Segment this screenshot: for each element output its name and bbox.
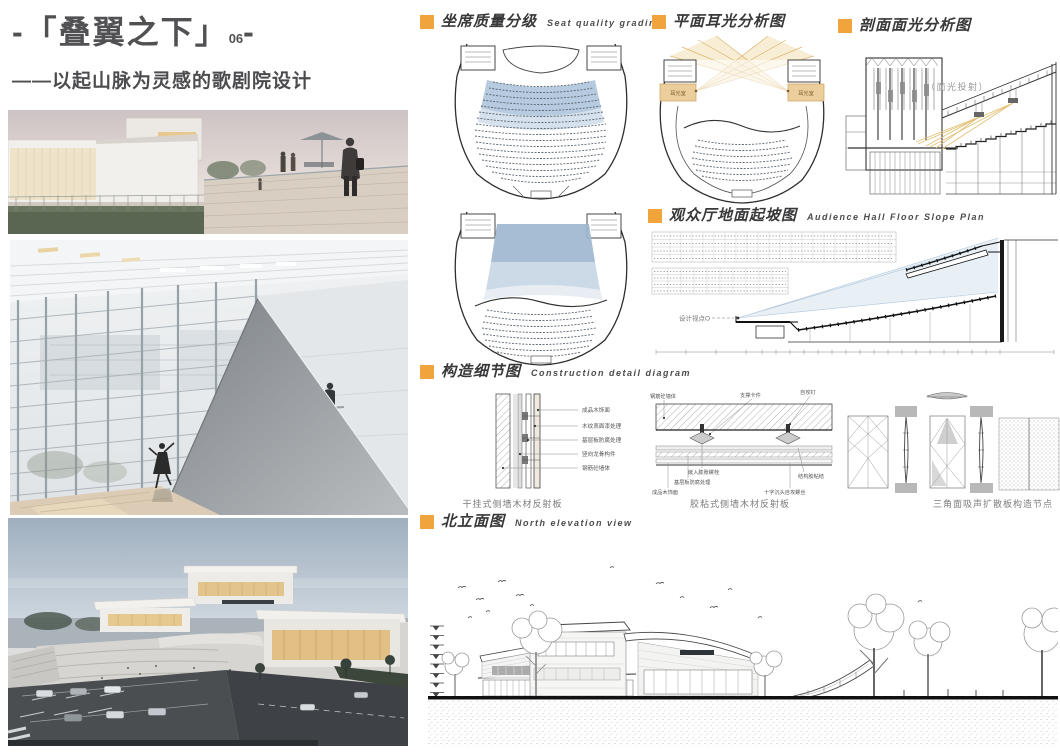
d2-callout-adhesive: 结构胶粘结 xyxy=(798,472,824,480)
poster: { "poster": { "title_open": "-「", "title… xyxy=(0,0,1060,753)
section-header-ear-light: 平面耳光分析图 xyxy=(652,14,785,30)
d2-callout-wall: 钢筋砼墙体 xyxy=(650,392,677,400)
detail-glued-diagram: 钢筋砼墙体 支撑卡件 自攻钉 嵌入膨胀螺栓 基层板防腐处理 成品木饰面 结构胶粘… xyxy=(648,388,840,496)
elevation-people xyxy=(904,689,1003,696)
ground-stipple xyxy=(428,701,1058,746)
floor-slope-title-zh: 观众厅地面起坡图 xyxy=(669,208,797,224)
render-terrace-art xyxy=(8,110,408,234)
detail-diffuser-diagram xyxy=(845,388,1060,493)
face-light-projection-label: （面光投射） xyxy=(926,81,989,92)
ear-room-left-label: 耳光室 xyxy=(670,89,686,97)
construction-detail-title-zh: 构造细节图 xyxy=(441,364,521,380)
north-elevation-drawing xyxy=(428,538,1058,748)
d1-callout-2: 木纹表面漆处理 xyxy=(582,422,622,430)
section-header-north-elevation: 北立面图 North elevation view xyxy=(420,514,633,530)
title-index: 06 xyxy=(229,31,243,46)
detail-dry-hang-diagram: 成品木饰面 木纹表面漆处理 基层板防腐处理 竖向龙骨构件 钢筋砼墙体 xyxy=(478,390,643,492)
floor-slope-title-en: Audience Hall Floor Slope Plan xyxy=(807,212,985,222)
ear-room-right-label: 耳光室 xyxy=(798,89,814,97)
d2-callout-crossscrew: 十字沉头自攻螺丝 xyxy=(764,488,806,496)
d2-callout-finish: 成品木饰面 xyxy=(652,488,678,496)
seat-grading-title-en: Seat quality grading xyxy=(547,18,663,28)
section-header-seat-grading: 坐席质量分级 Seat quality grading xyxy=(420,14,663,30)
orange-square-icon xyxy=(648,209,662,223)
title-close: 」 xyxy=(195,14,229,50)
title-main: 叠翼之下 xyxy=(59,14,195,50)
orange-square-icon xyxy=(420,365,434,379)
render-aerial-art xyxy=(8,518,408,746)
d1-callout-4: 竖向龙骨构件 xyxy=(582,450,616,458)
seat-plan-level2-diagram xyxy=(443,206,639,366)
d1-callout-3: 基层板防腐处理 xyxy=(582,436,622,444)
orange-square-icon xyxy=(838,19,852,33)
floor-slope-diagram: 设计视点O xyxy=(650,230,1060,362)
north-elevation-title-en: North elevation view xyxy=(515,518,633,528)
detail-caption-1: 干挂式侧墙木材反射板 xyxy=(440,497,585,510)
render-atrium-photo xyxy=(10,240,408,515)
d2-callout-baseboard: 基层板防腐处理 xyxy=(674,478,711,486)
render-terrace-photo xyxy=(8,110,408,234)
d1-callout-1: 成品木饰面 xyxy=(582,406,610,414)
d2-callout-clip: 支撑卡件 xyxy=(740,391,761,399)
section-header-floor-slope: 观众厅地面起坡图 Audience Hall Floor Slope Plan xyxy=(648,208,985,224)
face-light-section-diagram: （面光投射） xyxy=(838,52,1060,205)
title-block: -「叠翼之下」06- ——以起山脉为灵感的歌剧院设计 xyxy=(12,12,410,93)
orange-square-icon xyxy=(420,15,434,29)
slope-data-table-2 xyxy=(652,268,788,294)
design-viewpoint-label: 设计视点O xyxy=(679,314,710,323)
d1-callout-5: 钢筋砼墙体 xyxy=(582,464,610,472)
detail-caption-2: 胶粘式侧墙木材反射板 xyxy=(665,497,815,510)
detail-caption-3: 三角面吸声扩散板构造节点 xyxy=(918,497,1060,510)
render-atrium-art xyxy=(10,240,408,515)
elevation-level-markers xyxy=(430,626,444,697)
render-aerial-photo xyxy=(8,518,408,746)
seat-plan-level1-diagram xyxy=(443,36,639,202)
section-header-face-light: 剖面面光分析图 xyxy=(838,18,971,34)
construction-detail-title-en: Construction detail diagram xyxy=(531,368,691,378)
d2-callout-anchor: 嵌入膨胀螺栓 xyxy=(688,468,720,476)
orange-square-icon xyxy=(420,515,434,529)
north-elevation-title-zh: 北立面图 xyxy=(441,514,505,530)
title-open: -「 xyxy=(12,14,59,50)
ear-light-plan-diagram: 耳光室 耳光室 xyxy=(650,34,834,204)
title-end: - xyxy=(243,14,256,50)
face-light-title-zh: 剖面面光分析图 xyxy=(859,18,971,34)
seat-grading-title-zh: 坐席质量分级 xyxy=(441,14,537,30)
orange-square-icon xyxy=(652,15,666,29)
slope-data-table-1 xyxy=(652,232,896,262)
d2-callout-screw: 自攻钉 xyxy=(800,388,816,396)
page-subtitle: ——以起山脉为灵感的歌剧院设计 xyxy=(12,66,410,93)
page-title: -「叠翼之下」06- xyxy=(12,12,410,59)
section-header-construction-detail: 构造细节图 Construction detail diagram xyxy=(420,364,691,380)
ear-light-title-zh: 平面耳光分析图 xyxy=(673,14,785,30)
